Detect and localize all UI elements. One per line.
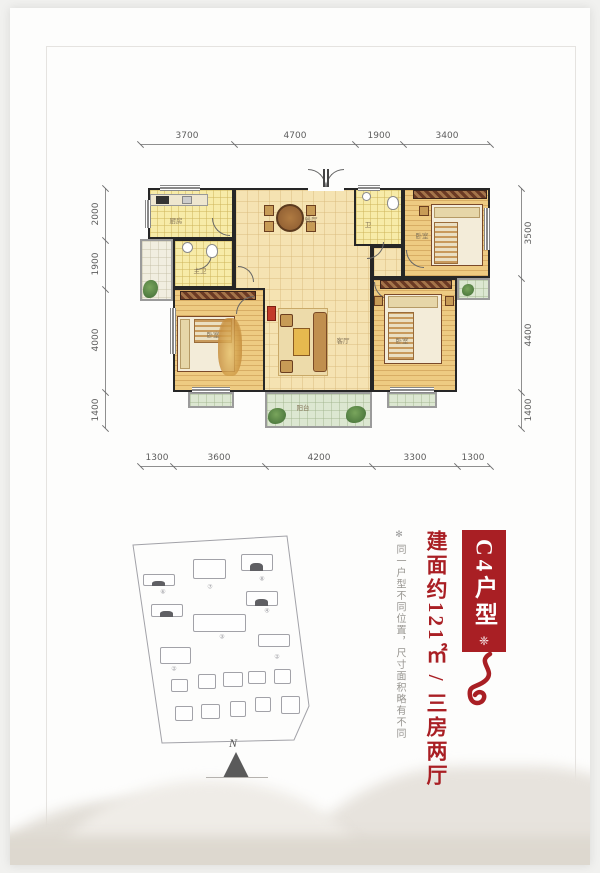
toilet-icon <box>387 196 399 210</box>
site-building-number: ② <box>274 654 279 661</box>
banner-ornament-icon: ❈ <box>479 634 489 648</box>
dim-label: 1300 <box>146 453 169 463</box>
balcony-small-left <box>188 392 234 408</box>
dim-label: 3700 <box>176 131 199 141</box>
bed-pillow <box>388 296 438 308</box>
window <box>170 308 176 354</box>
unit-type-banner: C4户型 ❈ <box>462 530 506 652</box>
nightstand <box>374 296 383 306</box>
dim-line-top <box>140 144 490 145</box>
dim-label: 3300 <box>404 453 427 463</box>
site-building <box>258 634 290 647</box>
balcony-small-right <box>387 392 437 408</box>
armchair <box>280 314 293 327</box>
entry-door-leaf <box>323 169 325 187</box>
room-label-balcony: 阳台 <box>297 402 310 412</box>
window <box>484 208 490 250</box>
basin-icon <box>362 192 371 201</box>
bed-pillow <box>434 207 480 218</box>
site-building <box>198 674 216 689</box>
dim-label: 1300 <box>462 453 485 463</box>
stove-icon <box>156 196 169 204</box>
site-building <box>143 574 175 586</box>
unit-type-title: C4户型 <box>473 539 496 629</box>
bed-pillow <box>180 319 190 369</box>
window <box>390 387 434 393</box>
dim-label: 4200 <box>308 453 331 463</box>
dim-label: 4400 <box>524 324 534 347</box>
flower-marker-icon: ✻ <box>395 530 403 540</box>
site-building <box>223 672 243 687</box>
site-building-highlight <box>250 563 263 571</box>
site-building-highlight <box>255 599 268 606</box>
compass-north-label: N <box>229 736 237 751</box>
site-building <box>255 697 271 712</box>
bed-blanket <box>434 222 458 264</box>
site-building-highlight <box>152 581 165 587</box>
site-building <box>175 706 193 721</box>
disclaimer: ✻ 同一户型不同位置，尺寸面积略有不同 <box>391 530 407 760</box>
kitchen-sink-icon <box>182 196 192 204</box>
dim-label: 1400 <box>91 399 101 422</box>
site-building-number: ⑥ <box>160 589 165 596</box>
nightstand <box>445 296 454 306</box>
dim-label: 3400 <box>436 131 459 141</box>
dim-label: 3500 <box>524 222 534 245</box>
site-building <box>201 704 220 719</box>
toilet-icon <box>206 244 218 258</box>
dining-chair <box>264 221 274 232</box>
site-building-number: ③ <box>219 634 224 641</box>
brochure-page: 厨房 主卫 餐厅 卫 卧室 卧室 客厅 卧室 阳台 3700 4700 1900… <box>0 0 600 873</box>
site-building <box>151 604 183 617</box>
basin-icon <box>182 242 193 253</box>
dim-label: 4000 <box>91 329 101 352</box>
dim-label: 1900 <box>91 253 101 276</box>
room-label-bedroom-c: 卧室 <box>396 335 409 345</box>
site-building-number: ⑦ <box>207 584 212 591</box>
site-building <box>193 614 246 632</box>
nightstand <box>419 206 429 216</box>
dim-label: 1900 <box>368 131 391 141</box>
dim-label: 1400 <box>524 399 534 422</box>
site-building-number: ④ <box>264 608 269 615</box>
area-subtitle: 建面约121㎡ / 三房两厅 <box>417 530 447 810</box>
tv-icon <box>267 306 276 321</box>
site-plan-boundary <box>128 534 328 749</box>
room-label-bath: 卫 <box>365 219 372 229</box>
window <box>192 387 230 393</box>
site-building <box>274 669 291 684</box>
site-building <box>193 559 226 579</box>
site-building <box>230 701 246 717</box>
dim-label: 4700 <box>284 131 307 141</box>
room-label-bedroom-a: 卧室 <box>416 230 429 240</box>
armchair <box>280 360 293 373</box>
site-plan: ⑥ ⑦ ⑧ ④ ③ ② ② <box>128 534 328 749</box>
site-building <box>281 696 300 714</box>
room-label-living: 客厅 <box>337 335 350 345</box>
dining-table <box>276 204 304 232</box>
disclaimer-text: 同一户型不同位置，尺寸面积略有不同 <box>394 544 404 740</box>
room-label-dining: 餐厅 <box>305 214 318 224</box>
room-label-kitchen: 厨房 <box>170 215 183 225</box>
entry-door-leaf <box>327 169 329 187</box>
room-label-bedroom-b: 卧室 <box>207 329 220 339</box>
site-building-number: ⑧ <box>259 576 264 583</box>
site-building <box>241 554 273 571</box>
window <box>358 185 380 191</box>
site-building-highlight <box>160 611 173 617</box>
dim-label: 3600 <box>208 453 231 463</box>
site-building-number: ② <box>171 666 176 673</box>
banner-tail-swirl-icon <box>460 652 508 714</box>
room-label-master-bath: 主卫 <box>194 265 207 275</box>
site-building <box>246 591 278 606</box>
sofa <box>313 312 327 372</box>
coffee-table <box>293 328 310 356</box>
mountain-watermark <box>10 836 590 865</box>
dim-label: 2000 <box>91 203 101 226</box>
site-building <box>171 679 188 692</box>
compass-needle-icon <box>223 752 249 778</box>
window <box>160 185 200 191</box>
compass-baseline <box>206 777 268 778</box>
site-building <box>160 647 191 664</box>
wardrobe <box>413 190 487 199</box>
dim-line-bottom <box>140 466 490 467</box>
page-background: 厨房 主卫 餐厅 卫 卧室 卧室 客厅 卧室 阳台 3700 4700 1900… <box>10 8 590 865</box>
dining-chair <box>264 205 274 216</box>
plant-decor <box>218 318 242 376</box>
site-building <box>248 671 266 684</box>
